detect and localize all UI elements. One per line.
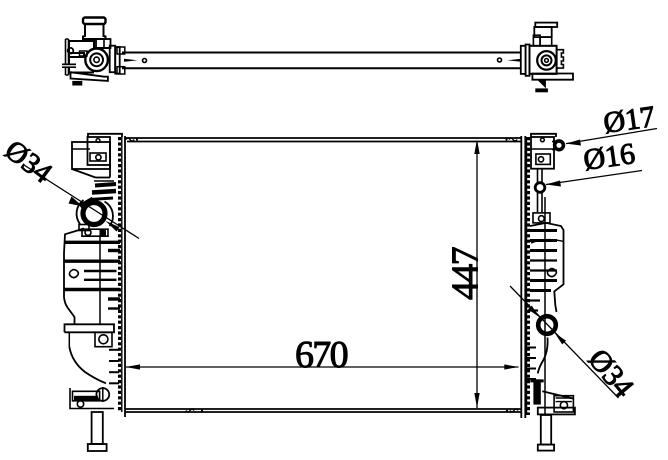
svg-text:447: 447 [445, 247, 487, 300]
svg-text:Ø34: Ø34 [582, 343, 640, 404]
svg-text:Ø17: Ø17 [601, 100, 657, 140]
svg-text:Ø16: Ø16 [581, 137, 637, 177]
svg-text:670: 670 [295, 334, 348, 376]
